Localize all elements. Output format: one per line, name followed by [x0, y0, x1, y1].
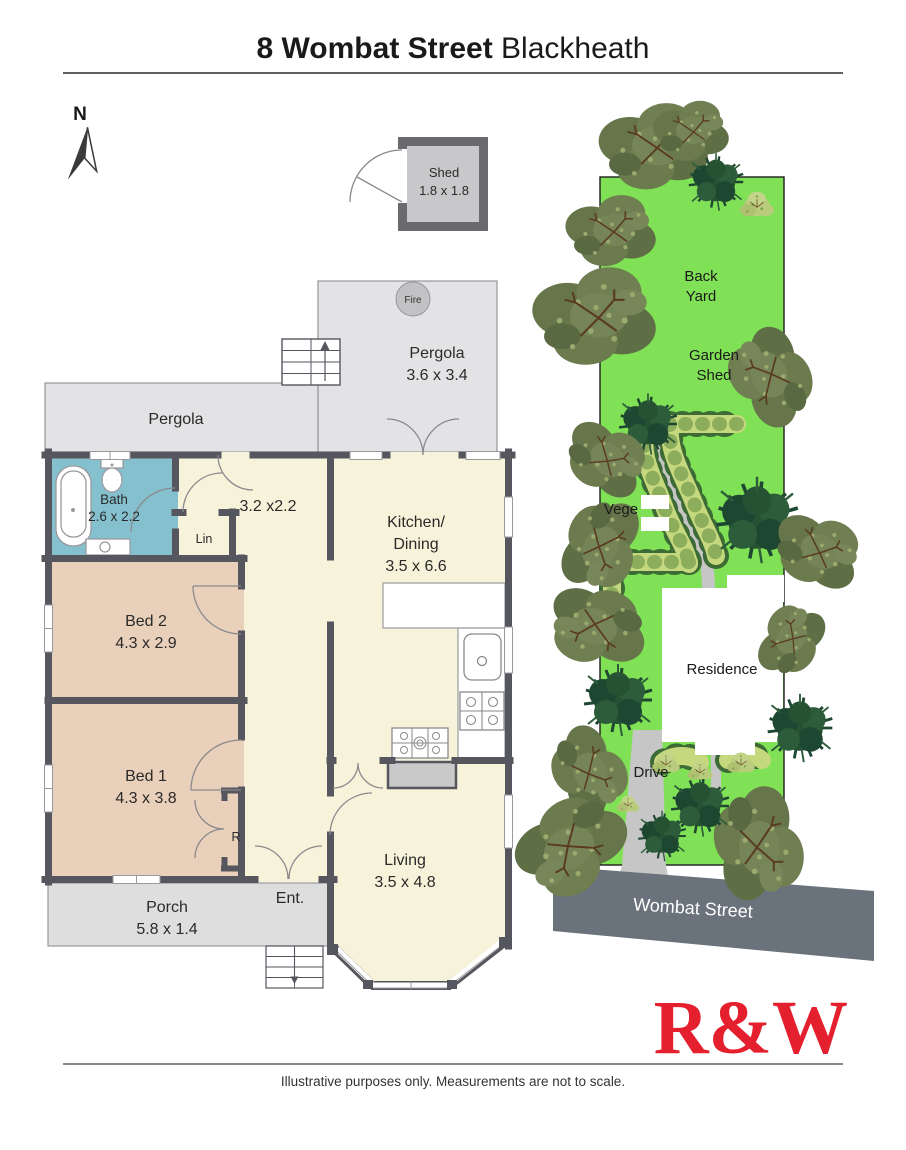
floorplan-page: 8 Wombat Street Blackheath N Shed 1.8 x …: [0, 0, 906, 1150]
fire-label: Fire: [404, 295, 422, 306]
lin-label: Lin: [196, 532, 213, 546]
vanity-icon: [86, 539, 130, 555]
kitchen-label-2: Dining: [393, 536, 438, 553]
vege-label: Vege: [604, 501, 638, 518]
room-bed2: [52, 562, 244, 700]
bed2-label: Bed 2: [125, 613, 167, 630]
cooktop-icon: [460, 692, 504, 730]
back-yard-label-1: Back: [684, 268, 718, 285]
fireplace-stove-icon: [392, 728, 448, 758]
hearth: [388, 762, 456, 788]
hall-dims: 3.2 x2.2: [240, 498, 297, 515]
kitchen-dims: 3.5 x 6.6: [385, 558, 446, 575]
bed1-dims: 4.3 x 3.8: [115, 790, 176, 807]
living-label: Living: [384, 852, 426, 869]
garden-shed-label-2: Shed: [696, 367, 731, 384]
pergola-side-label: Pergola: [148, 411, 203, 428]
back-yard-label-2: Yard: [686, 288, 717, 305]
shed-door-arc: [350, 150, 402, 202]
bath-label: Bath: [100, 492, 128, 507]
shed-plan: Shed 1.8 x 1.8: [350, 142, 484, 227]
porch-label: Porch: [146, 899, 188, 916]
page-title: 8 Wombat Street Blackheath: [257, 32, 650, 65]
bath-dims: 2.6 x 2.2: [88, 509, 140, 524]
room-bed1: [52, 700, 244, 877]
drive-label: Drive: [633, 764, 668, 781]
kitchen-label-1: Kitchen/: [387, 514, 445, 531]
robe-label: R: [231, 830, 240, 844]
floorplan-canvas: 8 Wombat Street Blackheath N Shed 1.8 x …: [0, 0, 906, 1150]
steps-down-icon: [266, 946, 323, 988]
pergola-top-label: Pergola: [409, 345, 464, 362]
living-dims: 3.5 x 4.8: [374, 874, 435, 891]
stairs-up-icon: [282, 339, 340, 385]
north-label: N: [73, 104, 87, 125]
shed-label: Shed: [429, 165, 459, 180]
fire-pit-icon: Fire: [396, 282, 430, 316]
bed2-dims: 4.3 x 2.9: [115, 635, 176, 652]
floor-plan: Fire: [45, 281, 513, 989]
toilet-icon: [101, 459, 123, 492]
pergola-top-dims: 3.6 x 3.4: [406, 367, 467, 384]
shed-dims: 1.8 x 1.8: [419, 183, 469, 198]
bathtub-icon: [56, 466, 91, 546]
shed-door-opening: [396, 149, 407, 203]
bed1-label: Bed 1: [125, 768, 167, 785]
site-plan: Back Yard Garden Shed Vege Residence Dri…: [501, 101, 875, 961]
north-arrow-icon: N: [68, 104, 101, 182]
residence-label: Residence: [687, 661, 758, 678]
porch-dims: 5.8 x 1.4: [136, 921, 197, 938]
garden-shed-label-1: Garden: [689, 347, 739, 364]
agency-logo: R&W: [654, 986, 848, 1070]
entry-label: Ent.: [276, 890, 304, 907]
disclaimer-text: Illustrative purposes only. Measurements…: [281, 1074, 625, 1089]
